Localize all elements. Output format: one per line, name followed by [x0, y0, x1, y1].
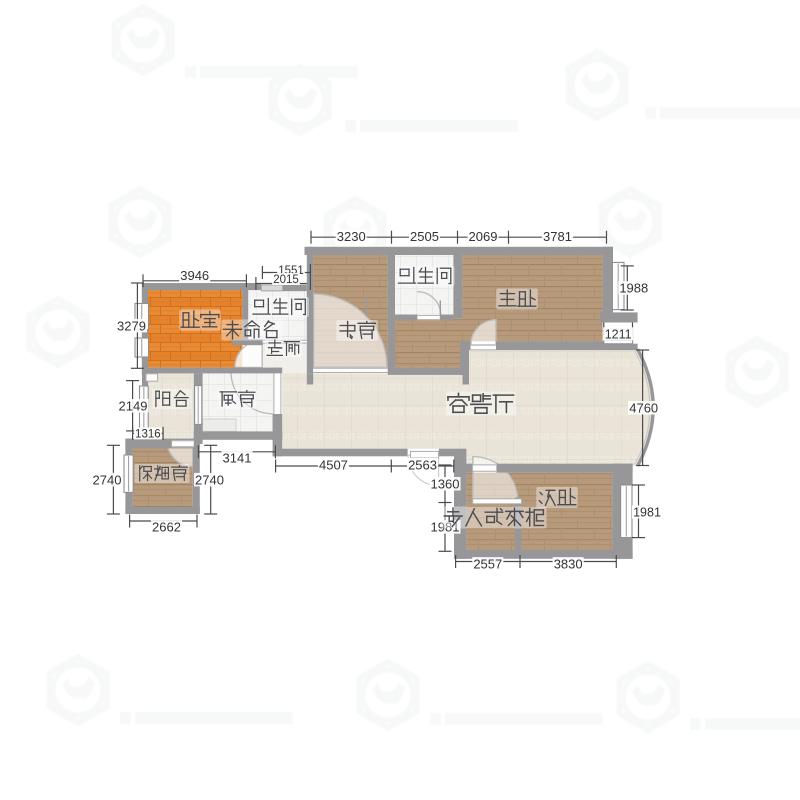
svg-text:2662: 2662	[152, 520, 181, 535]
svg-text:1316: 1316	[135, 429, 161, 441]
svg-text:2740: 2740	[195, 472, 224, 487]
svg-text:1981: 1981	[633, 506, 661, 520]
svg-text:2505: 2505	[410, 229, 439, 244]
svg-text:2563: 2563	[408, 457, 437, 472]
svg-text:2015: 2015	[273, 274, 299, 286]
svg-text:3830: 3830	[554, 557, 583, 572]
svg-text:3141: 3141	[223, 450, 252, 465]
svg-text:4507: 4507	[319, 457, 348, 472]
svg-text:3230: 3230	[337, 229, 366, 244]
svg-text:3781: 3781	[543, 229, 572, 244]
svg-text:3279: 3279	[117, 318, 146, 333]
svg-text:3946: 3946	[180, 268, 209, 283]
svg-text:1988: 1988	[619, 281, 648, 296]
svg-text:2740: 2740	[93, 472, 122, 487]
svg-text:1360: 1360	[431, 476, 460, 491]
svg-text:4760: 4760	[629, 400, 658, 415]
svg-text:2149: 2149	[119, 398, 148, 413]
svg-text:1211: 1211	[605, 327, 632, 341]
svg-text:2557: 2557	[473, 557, 502, 572]
svg-text:2069: 2069	[469, 229, 498, 244]
